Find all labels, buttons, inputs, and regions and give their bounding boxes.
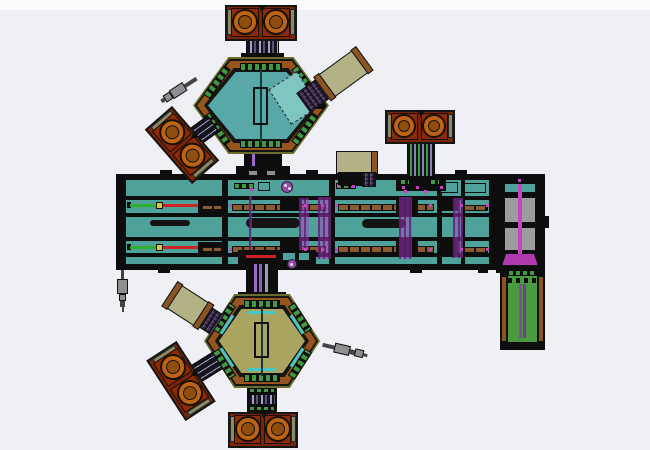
- neck-pad: [266, 170, 276, 176]
- transfer-neck: [246, 264, 278, 294]
- neck-line: [254, 264, 257, 294]
- service-panel-base: [338, 172, 362, 186]
- platform-bottom-tab: [478, 268, 488, 273]
- loadlock-frame: [500, 268, 545, 350]
- slide-capsule: [150, 220, 190, 226]
- actuator-rod-red: [163, 246, 199, 249]
- lift-band: [399, 197, 412, 259]
- lift-band: [453, 198, 463, 258]
- lift-line: [249, 196, 252, 258]
- robot-center: [253, 87, 268, 125]
- platform-top-tab: [455, 170, 467, 176]
- panel-end-cap: [350, 46, 373, 74]
- background-top-strip: [0, 0, 650, 10]
- elevator-magenta-stage: [502, 253, 538, 266]
- actuator-rod-green: [130, 204, 156, 207]
- actuator-rod-red: [163, 204, 199, 207]
- service-panel: [336, 151, 374, 174]
- rotor-detail: [281, 181, 293, 193]
- linear-rail: [464, 205, 488, 211]
- neck-line: [265, 264, 268, 294]
- platform-bottom-tab: [410, 268, 422, 273]
- lower-cluster-hexagon: [204, 294, 320, 388]
- platform-top-right-chamber: [385, 110, 455, 144]
- slot-valve-bar: [249, 388, 275, 393]
- upper-cluster-top-chamber: [225, 5, 297, 41]
- platform-top-tab: [306, 170, 318, 176]
- platform-top-tab: [160, 170, 172, 176]
- slide-capsule: [246, 218, 300, 228]
- lift-band: [318, 197, 331, 259]
- neck-stripes: [248, 394, 276, 405]
- probe-point: [363, 353, 368, 357]
- lift-band: [299, 198, 309, 258]
- loadlock-rail-right: [538, 276, 544, 342]
- probe-handle: [117, 279, 128, 294]
- carriage-rail: [202, 205, 222, 210]
- loadlock-bottom-bar: [507, 342, 538, 346]
- small-fixture: [464, 183, 486, 193]
- chamber-neck: [247, 386, 277, 414]
- small-fixture: [258, 182, 270, 191]
- linear-rail: [232, 204, 326, 211]
- loadlock-shaft-line: [519, 284, 522, 338]
- actuator-coupler: [156, 202, 163, 209]
- wafer-pedestal-hub: [271, 422, 285, 436]
- chamber-neck: [407, 140, 435, 178]
- rotor-detail: [287, 259, 297, 269]
- status-bar-red: [246, 255, 276, 258]
- probe-point: [122, 307, 124, 312]
- carriage-rail: [202, 247, 222, 252]
- actuator-coupler: [156, 244, 163, 251]
- cad-canvas: [0, 0, 650, 450]
- right-nub: [545, 216, 549, 228]
- wafer-pedestal-hub: [269, 15, 283, 29]
- platform-bottom-tab: [158, 268, 170, 273]
- neck-pad: [248, 170, 258, 176]
- module-end-cap: [448, 114, 453, 138]
- module-end-cap: [290, 9, 295, 35]
- linear-rail: [338, 204, 434, 211]
- wafer-pedestal-hub: [428, 120, 440, 132]
- slot-valve-bar: [234, 183, 254, 189]
- probe-rod: [184, 77, 198, 88]
- wafer-pedestal-hub: [238, 15, 252, 29]
- small-fixture: [298, 252, 310, 261]
- platform-divider: [489, 178, 493, 266]
- slot-valve-bar: [249, 406, 275, 411]
- actuator-rod-green: [130, 246, 156, 249]
- slot-valve-bar: [400, 179, 410, 185]
- loadlock-slots: [508, 270, 537, 276]
- angled-service-panel: [163, 282, 212, 327]
- transfer-neck-flange: [236, 166, 290, 176]
- module-end-cap: [291, 416, 296, 442]
- elevator-shaft-line: [518, 184, 522, 254]
- service-bellows: [362, 172, 376, 187]
- panel-end-cap: [161, 281, 183, 310]
- loadlock-shaft-line: [523, 284, 526, 338]
- service-panel-cap: [371, 151, 378, 174]
- lower-cluster-bottom-chamber: [228, 412, 298, 448]
- neck-line: [259, 264, 262, 294]
- slot-valve-bar: [430, 179, 440, 185]
- wafer-pedestal-hub: [241, 422, 255, 436]
- probe-mid: [119, 294, 126, 301]
- linear-rail: [464, 247, 488, 253]
- magenta-fastener-dots: [0, 0, 3, 3]
- wafer-pedestal-hub: [398, 120, 410, 132]
- probe-rod: [322, 343, 335, 350]
- linear-rail: [338, 246, 434, 253]
- right-probe: [321, 337, 369, 363]
- robot-center: [254, 322, 269, 358]
- loadlock-sensor-row: [508, 278, 537, 283]
